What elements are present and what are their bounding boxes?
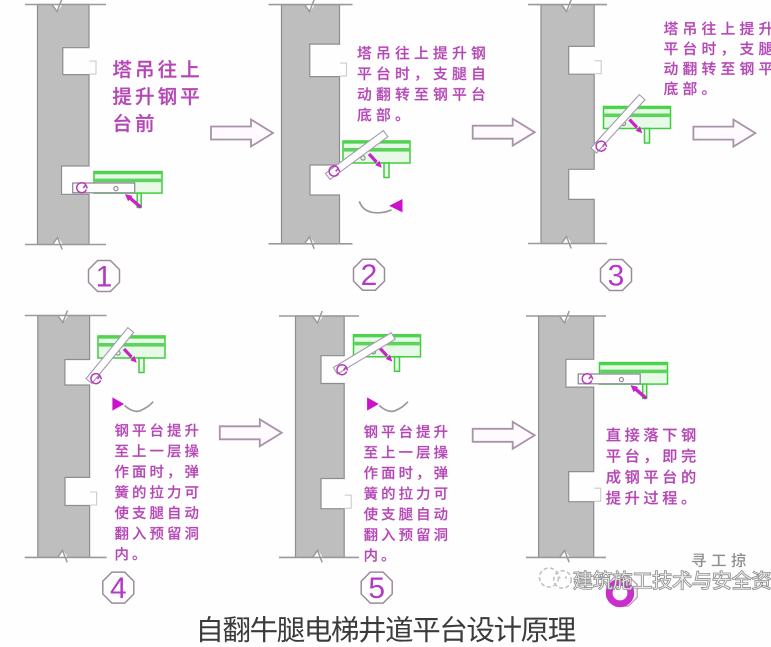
svg-text:3: 3 bbox=[608, 260, 625, 293]
svg-text:5: 5 bbox=[368, 572, 385, 605]
svg-text:4: 4 bbox=[110, 572, 127, 605]
svg-text:2: 2 bbox=[361, 259, 378, 292]
svg-text:1: 1 bbox=[96, 261, 113, 294]
